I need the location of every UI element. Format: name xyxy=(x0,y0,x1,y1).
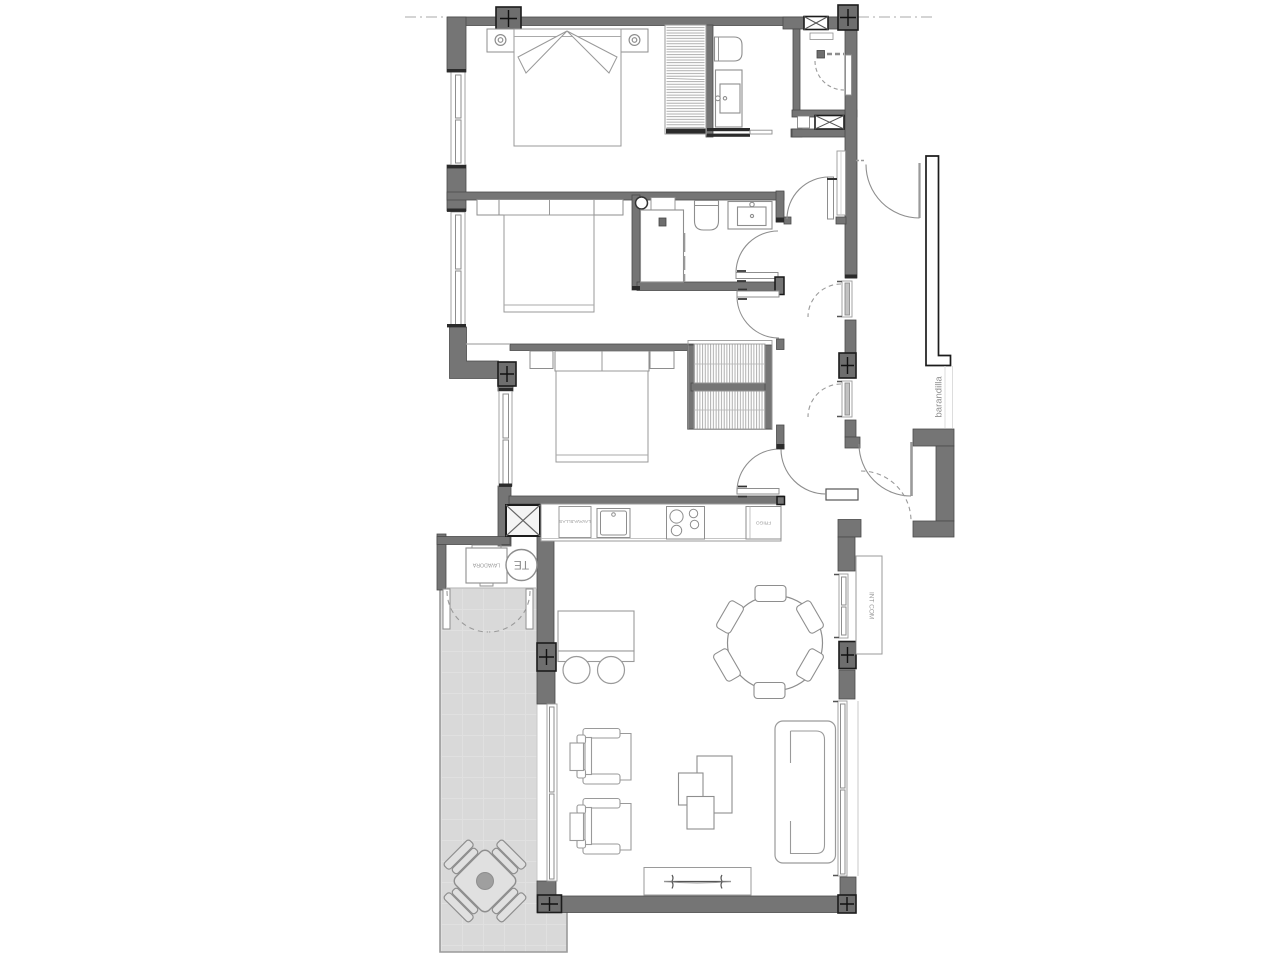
svg-text:LAVADORA: LAVADORA xyxy=(472,562,500,568)
svg-text:barandilla: barandilla xyxy=(934,376,945,418)
svg-text:INT COM: INT COM xyxy=(868,592,875,619)
svg-text:FRIGO: FRIGO xyxy=(756,520,771,526)
svg-text:TE: TE xyxy=(514,558,529,572)
svg-text:LAVAVAJILLAS: LAVAVAJILLAS xyxy=(559,519,590,524)
